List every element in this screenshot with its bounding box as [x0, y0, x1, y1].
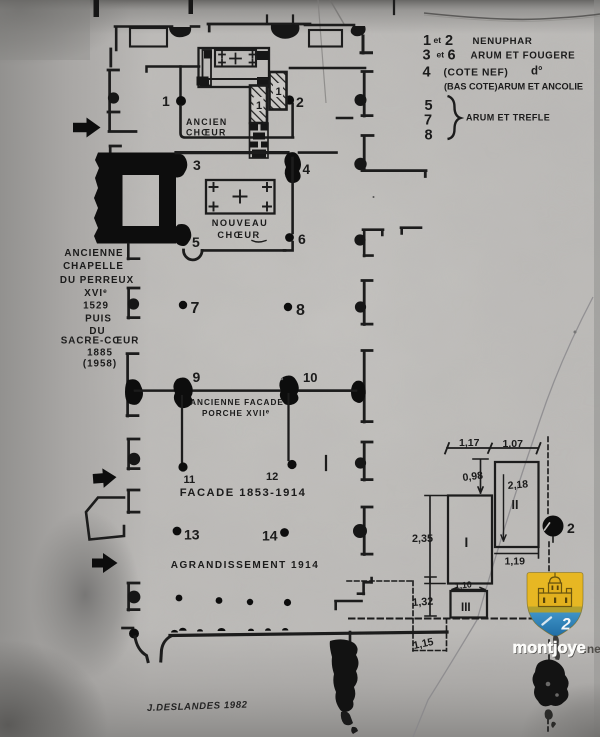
svg-text:3: 3	[423, 48, 431, 64]
svg-text:NOUVEAU: NOUVEAU	[212, 218, 268, 228]
svg-text:(COTE NEF): (COTE NEF)	[444, 68, 509, 79]
svg-text:4: 4	[423, 65, 431, 81]
svg-text:1,10: 1,10	[454, 579, 472, 591]
svg-text:PORCHE XVIIe: PORCHE XVIIe	[202, 409, 270, 418]
svg-text:8: 8	[425, 128, 433, 144]
svg-text:ARUM ET FOUGERE: ARUM ET FOUGERE	[471, 51, 576, 62]
svg-text:1,32: 1,32	[412, 596, 434, 609]
svg-text:CHAPELLE: CHAPELLE	[63, 261, 124, 272]
svg-text:1529: 1529	[83, 301, 109, 312]
svg-text:d°: d°	[531, 66, 543, 78]
svg-text:SACRE-CŒUR: SACRE-CŒUR	[61, 336, 140, 347]
svg-text:(1958): (1958)	[83, 359, 117, 370]
svg-text:2,18: 2,18	[507, 478, 529, 492]
svg-text:13: 13	[184, 527, 200, 543]
svg-text:7: 7	[424, 113, 432, 129]
svg-text:II: II	[512, 498, 519, 512]
svg-text:DU PERREUX: DU PERREUX	[60, 275, 134, 286]
svg-text:7: 7	[191, 300, 200, 317]
svg-text:NENUPHAR: NENUPHAR	[473, 36, 533, 47]
svg-text:1885: 1885	[87, 348, 113, 359]
svg-text:8: 8	[296, 302, 305, 319]
svg-text:montjoye: montjoye	[513, 639, 586, 657]
svg-text:I: I	[465, 535, 469, 550]
svg-text:12: 12	[266, 471, 278, 483]
svg-text:0,98: 0,98	[462, 470, 484, 484]
svg-text:10: 10	[303, 370, 317, 385]
svg-text:1: 1	[256, 100, 262, 112]
svg-text:(BAS COTE)ARUM ET ANCOLIE: (BAS COTE)ARUM ET ANCOLIE	[444, 82, 583, 92]
svg-text:ANCIENNE: ANCIENNE	[64, 248, 123, 259]
svg-text:2: 2	[561, 616, 571, 634]
svg-text:5: 5	[192, 234, 200, 250]
svg-text:9: 9	[193, 369, 201, 385]
svg-text:ANCIENNE FACADE: ANCIENNE FACADE	[190, 398, 284, 407]
svg-text:2,35: 2,35	[412, 533, 433, 545]
svg-text:4: 4	[303, 162, 311, 177]
svg-text:AGRANDISSEMENT 1914: AGRANDISSEMENT 1914	[171, 560, 320, 571]
svg-text:6: 6	[448, 48, 456, 64]
svg-text:et: et	[437, 50, 445, 60]
svg-text:6: 6	[298, 231, 306, 247]
svg-text:14: 14	[262, 528, 278, 544]
svg-text:3: 3	[193, 157, 201, 173]
svg-text:et: et	[434, 35, 442, 45]
svg-text:2: 2	[567, 520, 575, 536]
svg-text:1,07: 1,07	[503, 438, 524, 450]
svg-text:1: 1	[276, 86, 282, 98]
svg-text:.net: .net	[584, 642, 600, 656]
svg-text:PUIS: PUIS	[85, 314, 112, 325]
svg-text:1,19: 1,19	[505, 556, 526, 568]
svg-text:1: 1	[162, 93, 170, 109]
svg-text:ANCIEN: ANCIEN	[186, 117, 228, 127]
svg-text:ARUM ET TREFLE: ARUM ET TREFLE	[466, 113, 550, 123]
svg-text:1,17: 1,17	[459, 437, 480, 449]
svg-text:CHŒUR: CHŒUR	[186, 128, 227, 138]
svg-text:III: III	[461, 602, 471, 614]
svg-text:2: 2	[296, 94, 304, 110]
svg-text:11: 11	[184, 474, 196, 486]
svg-text:CHŒUR: CHŒUR	[217, 230, 260, 240]
svg-text:FACADE 1853-1914: FACADE 1853-1914	[180, 487, 307, 499]
